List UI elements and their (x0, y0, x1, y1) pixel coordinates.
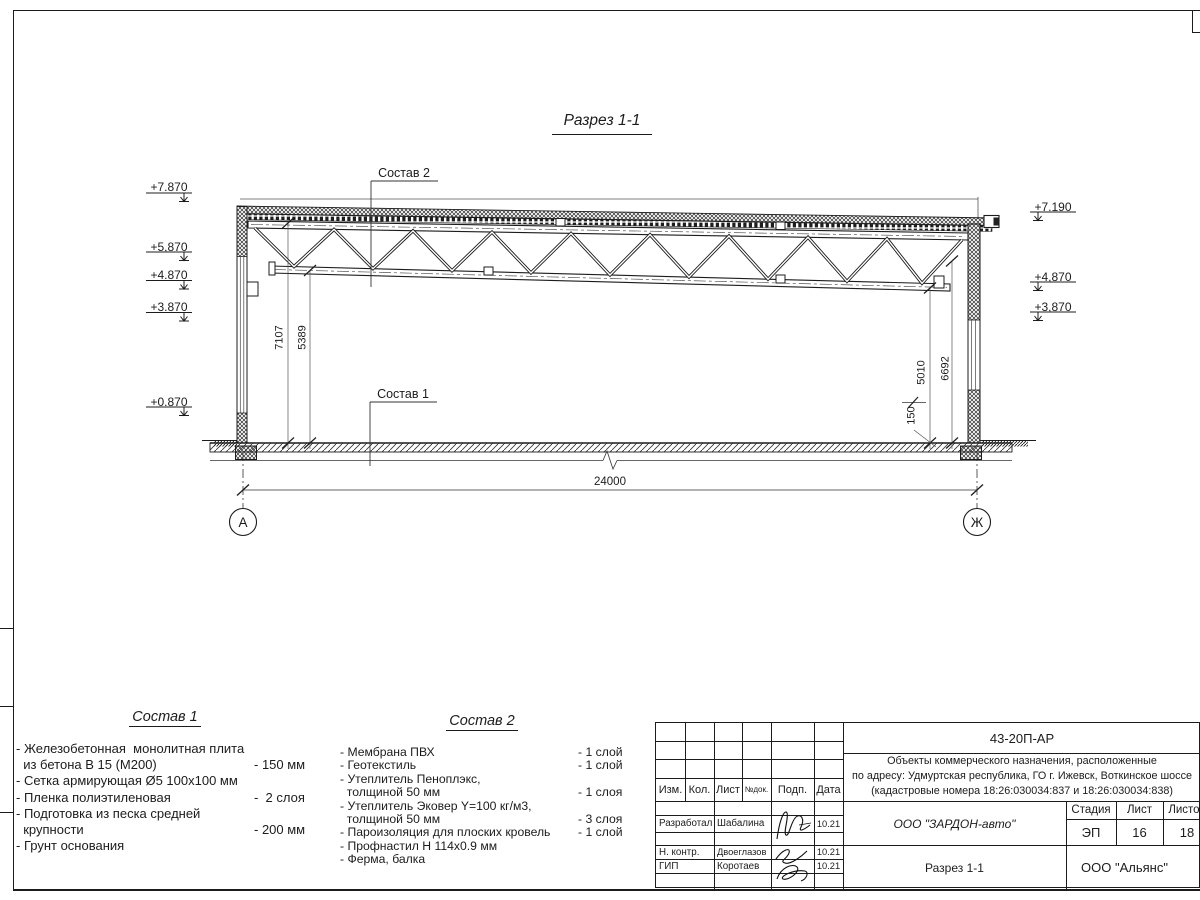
tb-doc-code: 43-20П-АР (843, 723, 1200, 753)
legend-row-value: - 200 мм (254, 822, 316, 838)
tb-col-ndoc: №док. (742, 778, 771, 801)
legend-row-value: - 3 слоя (578, 813, 630, 826)
tb-name-ncontrol: Двоеглазов (717, 845, 771, 859)
title-block: Изм. Кол. Лист №док. Подп. Дата Разработ… (655, 722, 1200, 888)
legend-row: - Утеплитель Эковер Y=100 кг/м3, (340, 800, 630, 813)
legend-row: - Ферма, балка (340, 853, 630, 866)
drawing-sheet: { "section": { "title": "Разрез 1-1", "c… (0, 0, 1200, 900)
elevation-label: +4,870 (1030, 270, 1076, 284)
legend-row: - Пленка полиэтиленовая - 2 слоя (16, 790, 316, 806)
tb-sheet-value: 16 (1116, 819, 1163, 845)
callout-sostav-1: Состав 1 (369, 387, 437, 401)
elevation-label: +0.870 (146, 395, 192, 409)
legend-row: - Геотекстиль - 1 слой (340, 759, 630, 772)
tb-desc-line1: Объекты коммерческого назначения, распол… (843, 754, 1200, 769)
elevation-label: +3,870 (1030, 300, 1076, 314)
tb-project-desc: Объекты коммерческого назначения, распол… (843, 754, 1200, 801)
legend-row: крупности - 200 мм (16, 822, 316, 838)
binding-mark (0, 812, 13, 813)
tb-col-list: Лист (714, 778, 742, 801)
tb-sheets-value: 18 (1163, 819, 1200, 845)
elevation-label: +7.870 (146, 180, 192, 194)
tb-desc-line2: по адресу: Удмуртская республика, ГО г. … (843, 769, 1200, 784)
legend-row: - Профнастил Н 114х0.9 мм (340, 840, 630, 853)
legend-row-text: - Железобетонная монолитная плита (16, 741, 254, 757)
legend-row-text: - Грунт основания (16, 838, 254, 854)
frame-bottom (13, 889, 1200, 891)
tb-sheet-title: Разрез 1-1 (843, 846, 1066, 889)
tb-company: ООО "ЗАРДОН-авто" (843, 802, 1066, 845)
legend-row: толщиной 50 мм - 1 слоя (340, 786, 630, 799)
tb-desc-line3: (кадастровые номера 18:26:030034:837 и 1… (843, 784, 1200, 799)
legend-row-value: - 1 слой (578, 746, 630, 759)
elevation-label: +3.870 (146, 300, 192, 314)
elevation-label: +5,870 (146, 240, 192, 254)
tb-col-data: Дата (814, 778, 843, 801)
legend-row: - Грунт основания (16, 838, 316, 854)
dim-150: 150 (906, 401, 919, 431)
tb-role-developer: Разработал (659, 815, 714, 832)
legend-row: - Пароизоляция для плоских кровель - 1 с… (340, 826, 630, 839)
section-drawing (0, 0, 1200, 700)
legend-row-value: - 150 мм (254, 757, 316, 773)
legend-row: - Подготовка из песка средней (16, 806, 316, 822)
legend-row-value: - 1 слоя (578, 786, 630, 799)
tb-date-ncontrol: 10.21 (814, 845, 843, 859)
tb-date-developer: 10.21 (814, 815, 843, 832)
binding-mark (0, 706, 13, 707)
legend-row-text: - Ферма, балка (340, 853, 578, 866)
legend-row-value: - 2 слоя (254, 790, 316, 806)
legend-row: - Сетка армирующая Ø5 100х100 мм (16, 773, 316, 789)
tb-role-gip: ГИП (659, 859, 714, 873)
legend-2-title: Состав 2 (446, 713, 517, 731)
elevation-label: +4.870 (146, 268, 192, 282)
legend-row-text: толщиной 50 мм (340, 786, 578, 799)
tb-org: ООО "Альянс" (1066, 846, 1200, 889)
tb-sheets-label: Листов (1163, 801, 1200, 819)
elevation-label: +7.190 (1030, 200, 1076, 214)
legend-row-text: - Геотекстиль (340, 759, 578, 772)
legend-1-title: Состав 1 (129, 709, 200, 727)
dim-5010: 5010 (916, 351, 929, 395)
legend-row-value: - 1 слой (578, 826, 630, 839)
axis-bubble-a: А (229, 515, 257, 530)
signature-ncontrol-gip (771, 841, 814, 887)
legend-row: толщиной 50 мм - 3 слоя (340, 813, 630, 826)
legend-row-text: из бетона В 15 (М200) (16, 757, 254, 773)
axis-bubble-zh: Ж (963, 515, 991, 530)
dim-7107: 7107 (274, 316, 287, 360)
section-title-text: Разрез 1-1 (564, 112, 641, 129)
tb-stage-value: ЭП (1066, 819, 1116, 845)
legend-row: - Железобетонная монолитная плита (16, 741, 316, 757)
legend-1-items: - Железобетонная монолитная плита из бет… (16, 741, 316, 854)
tb-col-podp: Подп. (771, 778, 814, 801)
legend-row-text: толщиной 50 мм (340, 813, 578, 826)
legend-row-text: - Мембрана ПВХ (340, 746, 578, 759)
legend-row-text: - Сетка армирующая Ø5 100х100 мм (16, 773, 254, 789)
tb-sheet-label: Лист (1116, 801, 1163, 819)
tb-col-izm: Изм. (656, 778, 685, 801)
legend-2-items: - Мембрана ПВХ - 1 слой - Геотекстиль - … (340, 746, 630, 867)
signature-developer (771, 803, 814, 845)
dim-24000: 24000 (580, 476, 640, 488)
tb-role-ncontrol: Н. контр. (659, 845, 714, 859)
legend-1-header: Состав 1 (14, 708, 316, 727)
tb-col-kol: Кол. (685, 778, 714, 801)
callout-sostav-2: Состав 2 (370, 166, 438, 180)
tb-date-gip: 10.21 (814, 859, 843, 873)
tb-stage-label: Стадия (1066, 801, 1116, 819)
legend-row: - Утеплитель Пеноплэкс, (340, 773, 630, 786)
dim-5389: 5389 (297, 316, 310, 360)
legend-row: - Мембрана ПВХ - 1 слой (340, 746, 630, 759)
tb-name-developer: Шабалина (717, 815, 771, 832)
legend-row-text: - Утеплитель Эковер Y=100 кг/м3, (340, 800, 578, 813)
legend-row-text: - Пароизоляция для плоских кровель (340, 826, 578, 839)
tb-name-gip: Коротаев (717, 859, 771, 873)
legend-row-text: - Утеплитель Пеноплэкс, (340, 773, 578, 786)
legend-row-text: крупности (16, 822, 254, 838)
legend-row-text: - Пленка полиэтиленовая (16, 790, 254, 806)
section-title: Разрез 1-1 (552, 112, 652, 135)
legend-row: из бетона В 15 (М200) - 150 мм (16, 757, 316, 773)
legend-row-text: - Подготовка из песка средней (16, 806, 254, 822)
legend-row-value: - 1 слой (578, 759, 630, 772)
legend-2-header: Состав 2 (336, 712, 628, 731)
legend-row-text: - Профнастил Н 114х0.9 мм (340, 840, 578, 853)
dim-6692: 6692 (940, 347, 953, 391)
